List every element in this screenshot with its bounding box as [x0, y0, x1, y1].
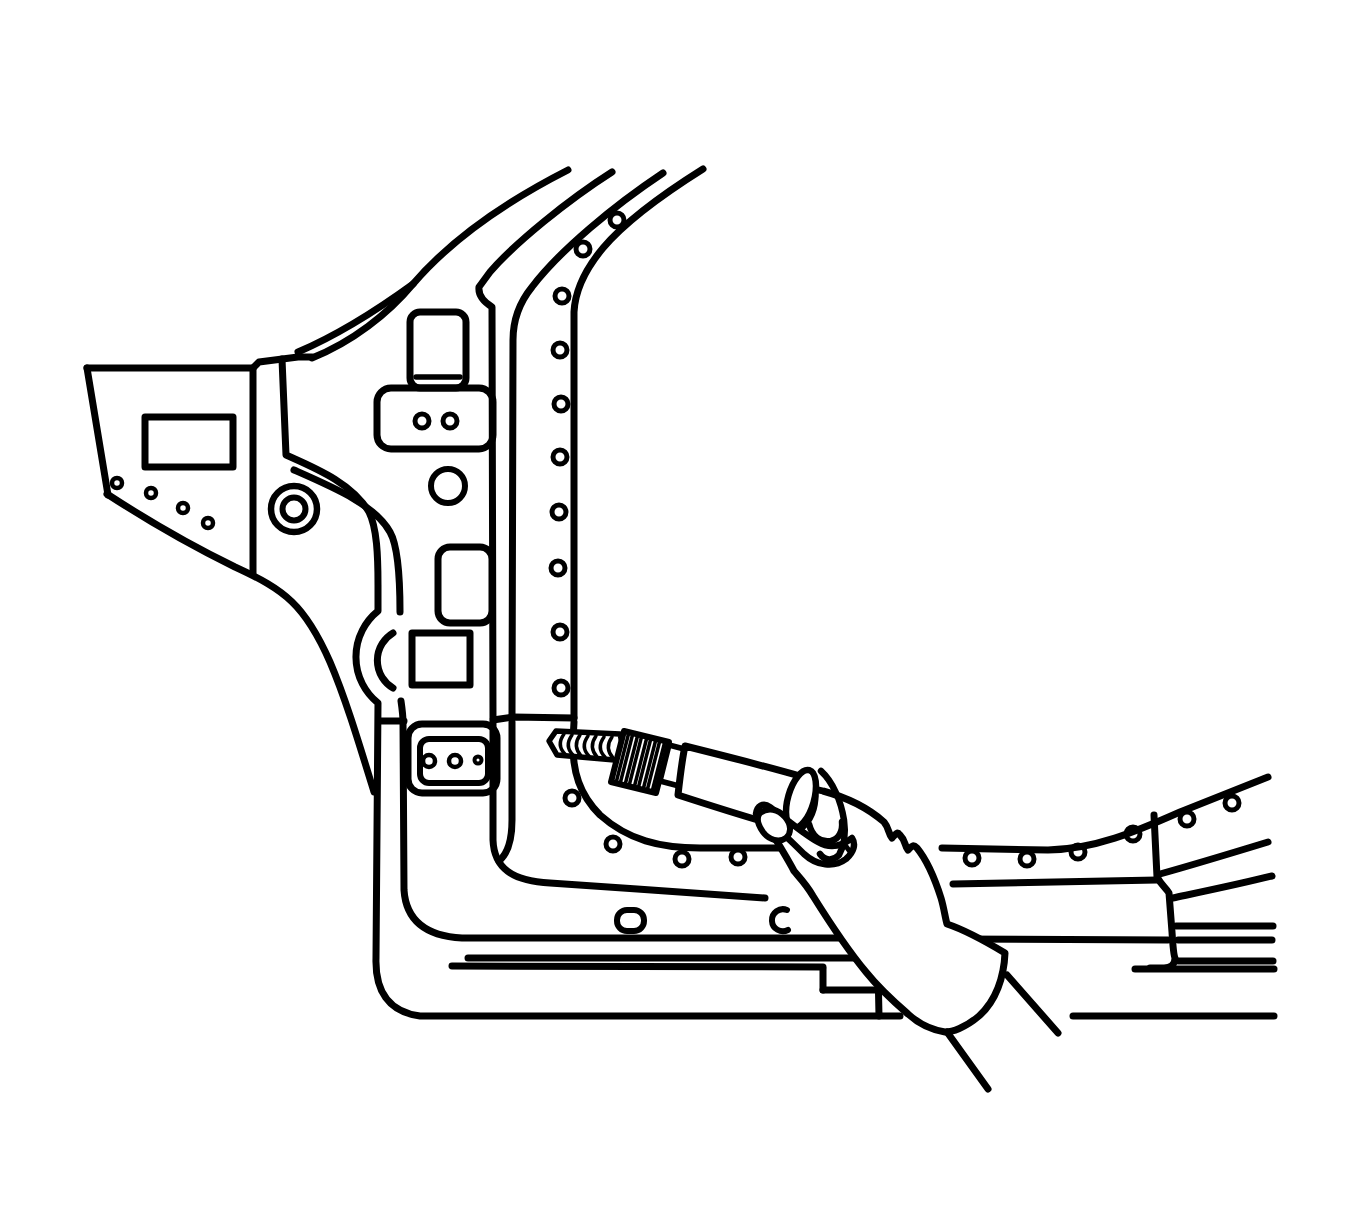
rocker-contour-curve-1 [1160, 842, 1268, 874]
pillar-bulge-inner-arc [377, 633, 393, 688]
hinge-plate-lower-inner [420, 739, 488, 783]
pillar-weld-hole-3 [555, 289, 569, 303]
apillar-line-2 [479, 172, 612, 718]
fingertip [758, 810, 790, 841]
pillar-weld-hole-7 [552, 505, 566, 519]
arm-line-1 [1007, 975, 1058, 1033]
hinge-plate-upper [377, 388, 493, 449]
rocker-contour-curve-2 [1173, 876, 1272, 898]
rocker-weld-hole-2 [606, 837, 620, 851]
pillar-weld-hole-2 [576, 242, 590, 256]
pillar-weld-hole-8 [551, 561, 565, 575]
pillar-weld-hole-1 [610, 213, 624, 227]
pillar-weld-hole-9 [553, 625, 567, 639]
pillar-round-hole [431, 469, 465, 503]
floor-oval-hole [617, 910, 644, 931]
rocker-weld-hole-4 [731, 850, 745, 864]
rocker-weld-hole-1 [565, 791, 579, 805]
rocker-step-line-2 [452, 966, 823, 967]
rocker-weld-hole-6 [1020, 852, 1034, 866]
hinge-plate-lower-hole-2 [449, 755, 461, 767]
apillar-line-3-lower [499, 722, 512, 861]
fender-flange-hole-3 [178, 503, 188, 513]
fender-opening-rect [145, 417, 233, 467]
pillar-square-hole [412, 633, 470, 685]
door-bottom-line-right [953, 880, 1157, 884]
pillar-weld-hole-4 [553, 343, 567, 357]
shelf-line-right [493, 717, 574, 720]
fender-left-edge [87, 368, 108, 495]
fender-bottom-edge [107, 494, 374, 792]
hinge-plate-upper-hole-2 [443, 414, 457, 428]
apillar-line-4 [574, 169, 703, 718]
rocker-weld-hole-5 [965, 851, 979, 865]
hinge-plate-upper-hole-1 [415, 414, 429, 428]
grommet-outer [271, 486, 317, 532]
illustration-stage [0, 0, 1355, 1221]
arm-line-2 [947, 1032, 988, 1089]
fender-flange-hole-4 [203, 518, 213, 528]
fender-flange-hole-1 [112, 478, 122, 488]
pillar-weld-hole-10 [554, 681, 568, 695]
pillar-weld-hole-5 [554, 397, 568, 411]
hinge-plate-lower-hole-1 [423, 755, 435, 767]
pillar-weld-hole-6 [553, 450, 567, 464]
rocker-flange-top [942, 777, 1268, 850]
grommet-inner [283, 498, 306, 521]
illustration-svg [0, 0, 1355, 1221]
hinge-plate-lower-hole-3 [475, 757, 482, 764]
fender-flange-hole-2 [146, 488, 156, 498]
pillar-outer-contour [282, 359, 900, 1016]
rocker-end-edge [1150, 815, 1175, 968]
pillar-slot-rect [438, 547, 492, 623]
fender-apillar-ridge-upper [298, 284, 413, 352]
rocker-weld-hole-10 [1225, 796, 1239, 810]
rocker-weld-hole-9 [1180, 812, 1194, 826]
apillar-line-1 [312, 170, 568, 358]
floor-c-mark [772, 909, 788, 931]
rocker-weld-hole-7 [1071, 845, 1085, 859]
rocker-weld-hole-3 [675, 852, 689, 866]
